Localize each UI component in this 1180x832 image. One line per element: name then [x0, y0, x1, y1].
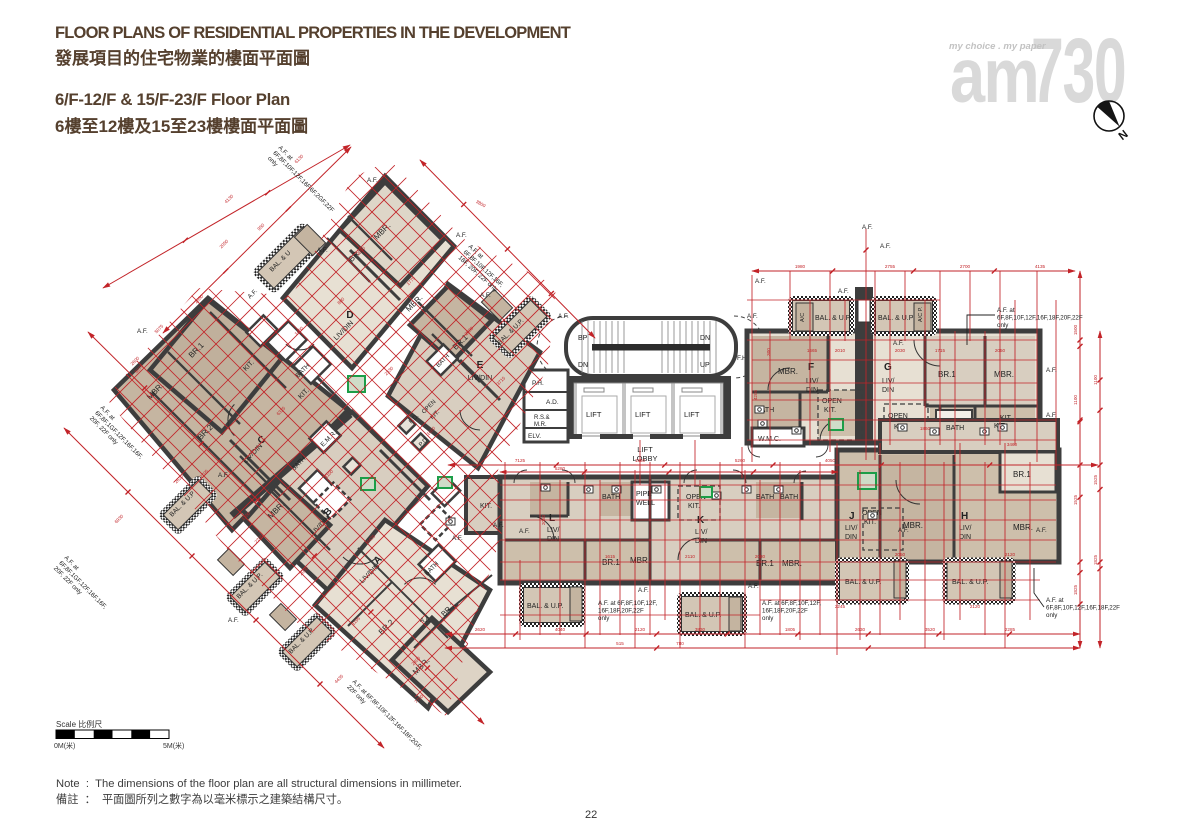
svg-text:3520: 3520	[925, 627, 936, 632]
svg-text:6130: 6130	[294, 153, 305, 164]
svg-text:A.F. at: A.F. at	[997, 307, 1015, 314]
svg-text:LIFT: LIFT	[586, 410, 602, 419]
svg-text:1525: 1525	[1073, 494, 1078, 505]
svg-text:1825: 1825	[1093, 554, 1098, 565]
svg-text:A.F.: A.F.	[420, 617, 431, 624]
svg-text:2120: 2120	[970, 604, 981, 609]
svg-text:A.F.: A.F.	[480, 292, 491, 299]
svg-text:300: 300	[766, 348, 771, 356]
svg-text:2080: 2080	[755, 554, 766, 559]
svg-text:LIV/: LIV/	[806, 378, 819, 385]
svg-text:DN: DN	[578, 362, 588, 369]
svg-text:2700: 2700	[960, 264, 971, 269]
svg-text:A.F.: A.F.	[748, 583, 759, 590]
svg-text:A.F.: A.F.	[456, 232, 467, 239]
svg-text:5280: 5280	[555, 466, 566, 471]
svg-text:my choice . my paper: my choice . my paper	[949, 41, 1047, 52]
svg-text:ELV.: ELV.	[528, 433, 541, 440]
svg-text:6F,8F,10F,12F,16F,18F,20F,22F: 6F,8F,10F,12F,16F,18F,20F,22F	[997, 315, 1083, 322]
svg-text:2050: 2050	[541, 514, 546, 525]
svg-text:A.F.: A.F.	[558, 313, 569, 320]
svg-text:4205: 4205	[753, 389, 758, 400]
svg-text:A.F.: A.F.	[452, 535, 463, 542]
svg-text:1715: 1715	[935, 348, 946, 353]
svg-text:515: 515	[616, 641, 624, 646]
svg-text:1805: 1805	[785, 627, 796, 632]
svg-text:BP: BP	[578, 335, 588, 342]
svg-text:A.F. at 6F,8F,10F,12F,: A.F. at 6F,8F,10F,12F,	[598, 600, 657, 607]
svg-text:1500: 1500	[1073, 324, 1078, 335]
svg-text:A.F.: A.F.	[218, 472, 229, 479]
svg-text:2110: 2110	[685, 554, 695, 559]
svg-text:LIV/: LIV/	[695, 529, 708, 536]
svg-text:MBR.: MBR.	[782, 559, 802, 568]
svg-text:R.S.&: R.S.&	[534, 415, 550, 421]
svg-text:2050: 2050	[995, 348, 1006, 353]
svg-text:BR.1: BR.1	[1013, 470, 1031, 479]
svg-text:A.F.: A.F.	[862, 224, 873, 231]
svg-text:D: D	[346, 310, 353, 321]
svg-text:2755: 2755	[885, 264, 896, 269]
svg-text:LIFT: LIFT	[635, 410, 651, 419]
svg-text:Scale 比例尺: Scale 比例尺	[56, 719, 102, 729]
svg-text:4135: 4135	[1035, 264, 1046, 269]
svg-text:WELL: WELL	[636, 500, 655, 507]
svg-text:only: only	[762, 615, 774, 622]
svg-text:1860: 1860	[920, 426, 931, 431]
svg-text:2285: 2285	[1005, 627, 1016, 632]
svg-text:2620: 2620	[475, 627, 486, 632]
svg-text:4050: 4050	[825, 458, 836, 463]
svg-text:6F,8F,1GF,12F,16F,16F,: 6F,8F,1GF,12F,16F,16F,	[57, 560, 108, 611]
svg-text:A.F.: A.F.	[493, 522, 504, 529]
svg-text:7125: 7125	[515, 458, 526, 463]
svg-text:0M(米): 0M(米)	[54, 741, 75, 750]
svg-text:A.F.: A.F.	[246, 288, 259, 301]
svg-text:3460: 3460	[1007, 442, 1018, 447]
svg-text:2245: 2245	[835, 604, 846, 609]
svg-text:1525: 1525	[1093, 474, 1098, 485]
svg-text:3830: 3830	[695, 627, 706, 632]
svg-text:MBR.: MBR.	[630, 556, 650, 565]
svg-text:A/C: A/C	[800, 313, 806, 322]
svg-text:2120: 2120	[635, 627, 646, 632]
svg-text:A.F. at: A.F. at	[1046, 597, 1064, 604]
svg-text:2630: 2630	[855, 627, 866, 632]
svg-text:L: L	[549, 513, 555, 524]
svg-text:5M(米): 5M(米)	[163, 741, 184, 750]
svg-text:M.R.: M.R.	[534, 422, 547, 428]
svg-text:3800: 3800	[475, 199, 487, 209]
svg-text:A.F.: A.F.	[1036, 527, 1047, 534]
svg-text:2050: 2050	[895, 552, 906, 557]
svg-text:4435: 4435	[334, 673, 345, 684]
svg-text:BR.1: BR.1	[756, 559, 774, 568]
svg-text:KIT.: KIT.	[688, 503, 700, 510]
svg-text:16F,18F,20F,22F: 16F,18F,20F,22F	[598, 608, 644, 615]
svg-text:A.F. at 6F,8F,10F,12F,: A.F. at 6F,8F,10F,12F,	[762, 600, 821, 607]
svg-text:2010: 2010	[835, 348, 846, 353]
svg-text:W.M.C.: W.M.C.	[758, 436, 781, 443]
svg-text:A.F.: A.F.	[317, 247, 328, 254]
svg-text:1665: 1665	[807, 348, 818, 353]
svg-text:G: G	[884, 362, 892, 373]
svg-text:1615: 1615	[605, 554, 616, 559]
svg-text:A.F.: A.F.	[893, 340, 904, 347]
svg-text:DN: DN	[700, 335, 710, 342]
svg-text:A.F.: A.F.	[755, 278, 766, 285]
svg-text:16F,18F,20F,22F: 16F,18F,20F,22F	[762, 608, 808, 615]
svg-text:6930: 6930	[114, 513, 125, 524]
svg-text:A.F.: A.F.	[638, 587, 649, 594]
svg-text:UP: UP	[700, 362, 710, 369]
svg-text:6F,8F,10F,12F,16F,18F,22F: 6F,8F,10F,12F,16F,18F,22F	[1046, 605, 1120, 612]
svg-text:A.D.: A.D.	[546, 399, 559, 406]
svg-text:K: K	[697, 515, 705, 526]
svg-text:LIV/: LIV/	[882, 378, 895, 385]
svg-text:N: N	[1117, 128, 1131, 143]
svg-text:1100: 1100	[1073, 395, 1078, 405]
svg-text:A.F.: A.F.	[519, 528, 530, 535]
svg-text:only: only	[598, 615, 610, 622]
svg-text:BR.1: BR.1	[602, 558, 620, 567]
svg-text:BR.1: BR.1	[938, 370, 956, 379]
svg-text:780: 780	[676, 641, 684, 646]
svg-text:only: only	[997, 322, 1009, 329]
svg-text:1825: 1825	[1073, 584, 1078, 595]
svg-text:2120: 2120	[1005, 552, 1016, 557]
svg-text:1550: 1550	[635, 458, 646, 463]
svg-text:A.F.: A.F.	[137, 328, 148, 335]
svg-text:LIV/: LIV/	[845, 525, 858, 532]
svg-text:only: only	[1046, 612, 1058, 619]
svg-text:5260: 5260	[735, 458, 746, 463]
svg-text:1100: 1100	[1093, 375, 1098, 385]
svg-text:BAL. & U.P.: BAL. & U.P.	[527, 603, 564, 610]
svg-text:2030: 2030	[895, 348, 906, 353]
svg-text:1980: 1980	[795, 264, 806, 269]
svg-text:A.F.: A.F.	[367, 177, 378, 184]
svg-text:OPEN: OPEN	[822, 398, 842, 405]
svg-text:DIN: DIN	[547, 536, 559, 543]
svg-text:BAL. & U.P.: BAL. & U.P.	[685, 612, 722, 619]
svg-text:A.F.: A.F.	[898, 527, 909, 534]
svg-text:A.F.: A.F.	[880, 243, 891, 250]
svg-text:A.F.: A.F.	[1046, 367, 1057, 374]
svg-text:A.F.: A.F.	[747, 313, 758, 320]
svg-text:LIV/: LIV/	[959, 525, 972, 532]
svg-text:A.F.: A.F.	[838, 288, 849, 295]
svg-text:4040: 4040	[555, 627, 566, 632]
svg-text:4130: 4130	[224, 193, 235, 204]
svg-text:LIFT: LIFT	[684, 410, 700, 419]
svg-text:F: F	[808, 362, 814, 373]
svg-text:950: 950	[256, 222, 265, 231]
svg-text:MBR.: MBR.	[994, 370, 1014, 379]
svg-text:2050: 2050	[219, 238, 230, 249]
svg-text:DIN: DIN	[695, 538, 707, 545]
svg-text:DIN: DIN	[882, 387, 894, 394]
svg-text:A/C P.: A/C P.	[918, 306, 924, 322]
svg-text:A.F.: A.F.	[1046, 412, 1057, 419]
svg-text:DIN: DIN	[806, 387, 818, 394]
svg-text:A.F.: A.F.	[228, 617, 239, 624]
svg-text:BAL. & U.P: BAL. & U.P	[878, 315, 914, 322]
